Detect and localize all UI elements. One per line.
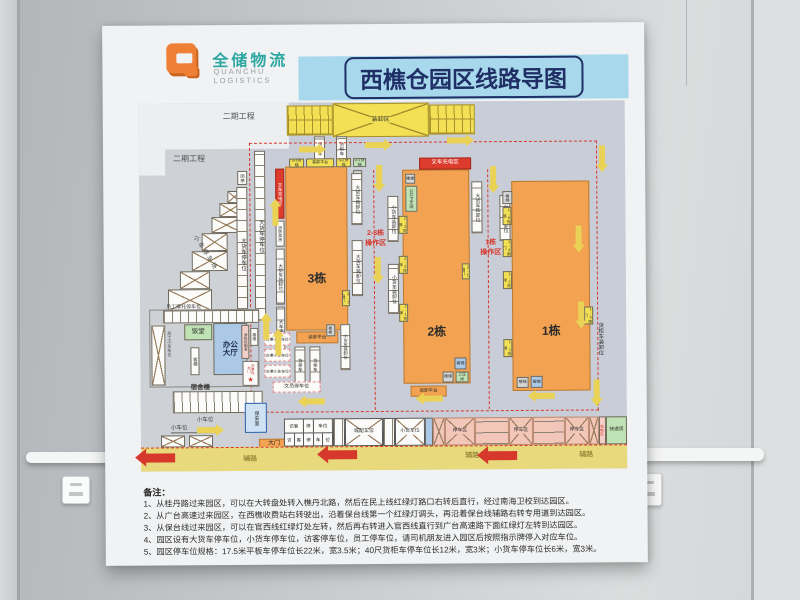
- lift-label: 3-1货梯: [354, 158, 365, 166]
- b1-lift-12: 1-2货梯: [503, 271, 512, 289]
- express-room-label: 快递房: [609, 428, 623, 433]
- car-row-label: 小车位: [197, 415, 214, 423]
- express-room: 快递房: [606, 416, 627, 444]
- b3-lift-31: 3-1货梯: [353, 158, 366, 167]
- office-gate-label: 办事处大门: [247, 363, 255, 377]
- visitor-parking-table: 访客 停 车位 访 客 停 车 位: [284, 418, 333, 446]
- map-top-left-cut2: [139, 149, 165, 175]
- lift-label: 客梯: [456, 361, 464, 365]
- truck-park-strip-label: 大货车停车位: [239, 237, 245, 270]
- parking-cells: [475, 417, 509, 445]
- stair-label: 楼梯: [519, 380, 527, 384]
- b3-stair-bottom: 楼梯: [326, 324, 335, 336]
- b1-passenger-lift: 客梯: [531, 376, 543, 388]
- op-zone-line1: 2-3栋: [354, 228, 398, 238]
- office-gate-sign: 办事处大门 ★: [242, 361, 258, 386]
- staff-car-label: 员工小车车位: [166, 331, 172, 383]
- b3-lift-33: 3-3货梯: [289, 158, 304, 167]
- office-passenger-lift: 客梯: [190, 347, 199, 375]
- phase2-label-b: 二期工程: [173, 153, 205, 164]
- lift-label: 2-3货梯: [399, 217, 407, 233]
- parking-cell-blue: [425, 418, 433, 446]
- title-band: 西樵仓园区线路导图: [298, 54, 628, 100]
- lift-label: 1-6货梯: [503, 208, 511, 224]
- platform-label: 装卸平台: [312, 161, 328, 165]
- b2-stair-bottom: 楼梯: [443, 371, 454, 382]
- parking-cells: [333, 418, 345, 446]
- outlet-slot: [69, 492, 83, 496]
- loading-strip-label: 大货车装卸位: [354, 185, 359, 214]
- logo-block-notch: [176, 53, 192, 63]
- moto-parking-row: [163, 310, 259, 324]
- flow-arrow: [594, 379, 600, 399]
- visitor-cell: 车位: [314, 419, 332, 432]
- park-zone-label: 停车区: [570, 428, 584, 433]
- park-zone-label: 停车区: [514, 428, 528, 433]
- staff-car-cells: [151, 325, 165, 385]
- lift-label: 客梯: [193, 357, 198, 366]
- route-arrow-red: [487, 451, 517, 460]
- city-dist-label: 城配车位: [354, 429, 374, 434]
- city-distribution-parking: 城配车位: [345, 418, 383, 446]
- visitor-cell: 访: [285, 434, 295, 447]
- wall-left-edge: [0, 0, 20, 600]
- building-2-label: 2栋: [427, 325, 446, 338]
- vacant-lot: [189, 435, 213, 447]
- logo-block-small: [184, 65, 197, 76]
- poster: 全储物流 QUANCHU LOGISTICS 西樵仓园区线路导图 二期工程 二期…: [102, 22, 648, 566]
- wc-label: 公共卫生间: [409, 189, 413, 209]
- stair-label: 楼梯: [329, 326, 333, 334]
- b1-lift-11: 1-1货梯: [503, 339, 512, 357]
- loading-strip-label: 大货车装卸位: [474, 193, 479, 222]
- star-icon: ★: [247, 377, 253, 384]
- flow-arrow: [365, 142, 385, 148]
- c23-small-load-2: 小货车装卸位: [388, 264, 399, 314]
- b2-lift-23: 2-3货梯: [398, 216, 407, 234]
- office-stair: 楼梯: [250, 328, 258, 346]
- container-strip-label: 货柜车: [313, 359, 318, 373]
- hall-line2: 大厅: [223, 349, 238, 357]
- stair-label: 楼梯: [406, 177, 414, 181]
- b1-stair-bottom: 楼梯: [517, 377, 529, 388]
- wall-rail-right: [628, 448, 764, 461]
- parking-cells: [533, 417, 565, 445]
- yard-office-car-3: 办事小车车位: [264, 365, 290, 378]
- office-car-label: 办事小车车位: [266, 369, 289, 373]
- visitor-cell: 访客: [285, 419, 304, 432]
- lift-label: 2-2货梯: [399, 257, 407, 273]
- parking-cells: [589, 416, 599, 444]
- b3-platform-top: 装卸平台: [306, 158, 334, 167]
- small-truck-label: 小货车位: [400, 429, 419, 434]
- charge-label: 叉车充电区: [431, 161, 459, 167]
- truck-park-strip-1: 大货车停车位: [236, 187, 248, 321]
- quanchu-logo-icon: [166, 41, 204, 81]
- lift-label: 3-2货梯: [337, 158, 350, 166]
- security-room: 保安室: [245, 403, 267, 433]
- wall-rail-left: [26, 452, 110, 463]
- flow-arrow: [376, 165, 382, 185]
- logo-en-1: QUANCHU: [213, 67, 265, 76]
- visitor-cell: 客: [295, 433, 305, 446]
- fire-room-label: 消防控制室: [243, 333, 247, 351]
- flow-arrow: [272, 206, 278, 226]
- top-zone-slots-right: [429, 104, 475, 134]
- stair-label: 楼梯: [505, 194, 509, 202]
- lift-label: 1-1货梯: [504, 340, 512, 356]
- outlet-slot: [70, 483, 82, 486]
- reserved-parking-zone-3: 停车区: [565, 417, 589, 445]
- flow-arrow: [599, 145, 605, 165]
- guard-booth: 岗亭: [237, 171, 247, 185]
- notes-line-5: 5、园区停车位规格：17.5米平板车停车位长22米，宽3.5米；40尺货柜车停车…: [144, 542, 624, 557]
- b2-stair-top: 楼梯: [405, 174, 415, 184]
- phase2-label-a: 二期工程: [223, 111, 255, 122]
- visitor-cell: 停: [304, 433, 314, 446]
- container-strip-label: 货柜车: [298, 359, 303, 373]
- building-1: 1栋: [511, 181, 590, 392]
- dorm-label: 宿舍楼: [191, 381, 211, 391]
- yard-container-1: 货柜车: [294, 346, 305, 384]
- b1-door-14: 1-4扇门: [503, 239, 512, 257]
- wall-corner-seam: [686, 0, 687, 86]
- small-truck-parking: 小货车位: [395, 418, 425, 446]
- service-road: [141, 444, 627, 471]
- service-road-label-1: 辅路: [243, 454, 257, 464]
- lift-label: 3-3货梯: [290, 159, 303, 167]
- platform-label: 装卸平台: [308, 335, 326, 340]
- canteen: 饭堂: [184, 324, 212, 340]
- loading-strip-label: 小货车装卸位: [343, 335, 348, 360]
- b2-wc-top: 公共卫生间: [405, 186, 417, 212]
- stair-label: 楼梯: [444, 375, 452, 379]
- vacant-lot: [161, 435, 185, 447]
- b2-door-21: 2-1扇门: [462, 263, 470, 279]
- b2-wc-bottom: 卫生间: [456, 371, 469, 382]
- building-3-label: 3栋: [308, 272, 327, 285]
- security-room-label: 保安室: [253, 410, 258, 425]
- b2-passenger-lift: 客梯: [454, 357, 466, 369]
- building-3: 3栋: [285, 166, 348, 330]
- pump-room-label: 消防泵房: [278, 226, 282, 242]
- loading-strip-label: 大货车装卸位: [278, 263, 283, 290]
- wc-label: 卫生间: [457, 373, 468, 381]
- route-arrow-red: [327, 450, 357, 459]
- top-zone-slots-left: [287, 105, 333, 135]
- office-hall-label: 办公 大厅: [223, 341, 238, 357]
- vacant-lot: [180, 271, 210, 289]
- top-zone-center: 装卸区: [333, 103, 429, 138]
- loading-strip-label: 大货车装卸位: [355, 254, 360, 283]
- flow-arrow: [447, 137, 467, 143]
- c23-operation-zone: 2-3栋 操作区: [354, 228, 398, 248]
- door-label: 3-1扇门: [342, 291, 350, 305]
- reserved-parking-zone-1: 停车区: [445, 417, 475, 445]
- loading-strip-label: 小货车装卸位: [391, 274, 396, 303]
- yard-container-2: 货柜车: [309, 346, 320, 384]
- door-label: 2-1扇门: [462, 264, 470, 278]
- stair-label: 楼梯: [252, 333, 256, 341]
- charge-zone-label: 充电区: [600, 425, 604, 436]
- lift-label: 客梯: [533, 380, 541, 384]
- visitor-cell: 停: [304, 419, 314, 432]
- b3-door-31: 3-1扇门: [342, 290, 350, 306]
- b2-lift-21: 2-1货梯: [399, 304, 408, 322]
- b1-lift-16: 1-6货梯: [502, 207, 511, 225]
- canteen-label: 饭堂: [192, 329, 205, 336]
- guard-booth-label: 岗亭: [240, 173, 245, 182]
- b3-left-loading: 大货车装卸位: [276, 249, 285, 305]
- flow-arrow: [305, 398, 325, 404]
- flow-arrow: [490, 166, 496, 186]
- lift-label: 2-1货梯: [400, 305, 408, 321]
- b1-stair-top: 楼梯: [502, 191, 512, 204]
- b3-lift-32: 3-2货梯: [336, 158, 351, 167]
- parking-cells: [383, 418, 395, 446]
- flow-arrow: [578, 302, 584, 322]
- park-zone-label: 停车区: [453, 429, 467, 434]
- lift-label: 1-2货梯: [503, 272, 511, 288]
- flow-arrow: [535, 393, 555, 399]
- page-title: 西樵仓园区线路导图: [344, 56, 583, 100]
- b2-forklift-charge: 叉车充电区: [419, 157, 471, 169]
- flow-arrow: [197, 427, 217, 433]
- parking-cells: [433, 418, 445, 446]
- reserved-parking-zone-2: 停车区: [509, 417, 533, 445]
- top-zone-label: 装卸区: [371, 117, 391, 123]
- yard-clerk-parking: 文员停车位: [273, 381, 321, 392]
- clerk-parking-label: 文员停车位: [284, 384, 309, 389]
- op-zone-line2: 操作区: [354, 238, 398, 248]
- fire-control-room: 消防控制室: [241, 325, 249, 359]
- flow-arrow: [375, 257, 381, 277]
- b3-small-load-bottom: 小货车装卸位: [340, 324, 350, 370]
- flow-arrow: [576, 226, 582, 246]
- c23-big-load-2: 大货车装卸位: [352, 240, 363, 296]
- wall-right-panel: [754, 0, 800, 600]
- power-outlet-left: [62, 476, 90, 504]
- c1-big-load: 大货车装卸位: [471, 181, 482, 233]
- c23-big-load-1: 大货车装卸位: [351, 173, 362, 225]
- flow-arrow: [275, 336, 281, 356]
- service-road-label-3: 辅路: [579, 449, 593, 459]
- flow-arrow: [263, 320, 269, 340]
- building-1-label: 1栋: [542, 324, 561, 337]
- logo-en-2: LOGISTICS: [213, 76, 271, 85]
- b2-lift-22: 2-2货梯: [399, 256, 408, 274]
- flow-arrow: [299, 146, 319, 152]
- flow-arrow: [423, 396, 443, 402]
- door-label: 1-4扇门: [503, 240, 511, 256]
- route-arrow-red: [145, 453, 175, 462]
